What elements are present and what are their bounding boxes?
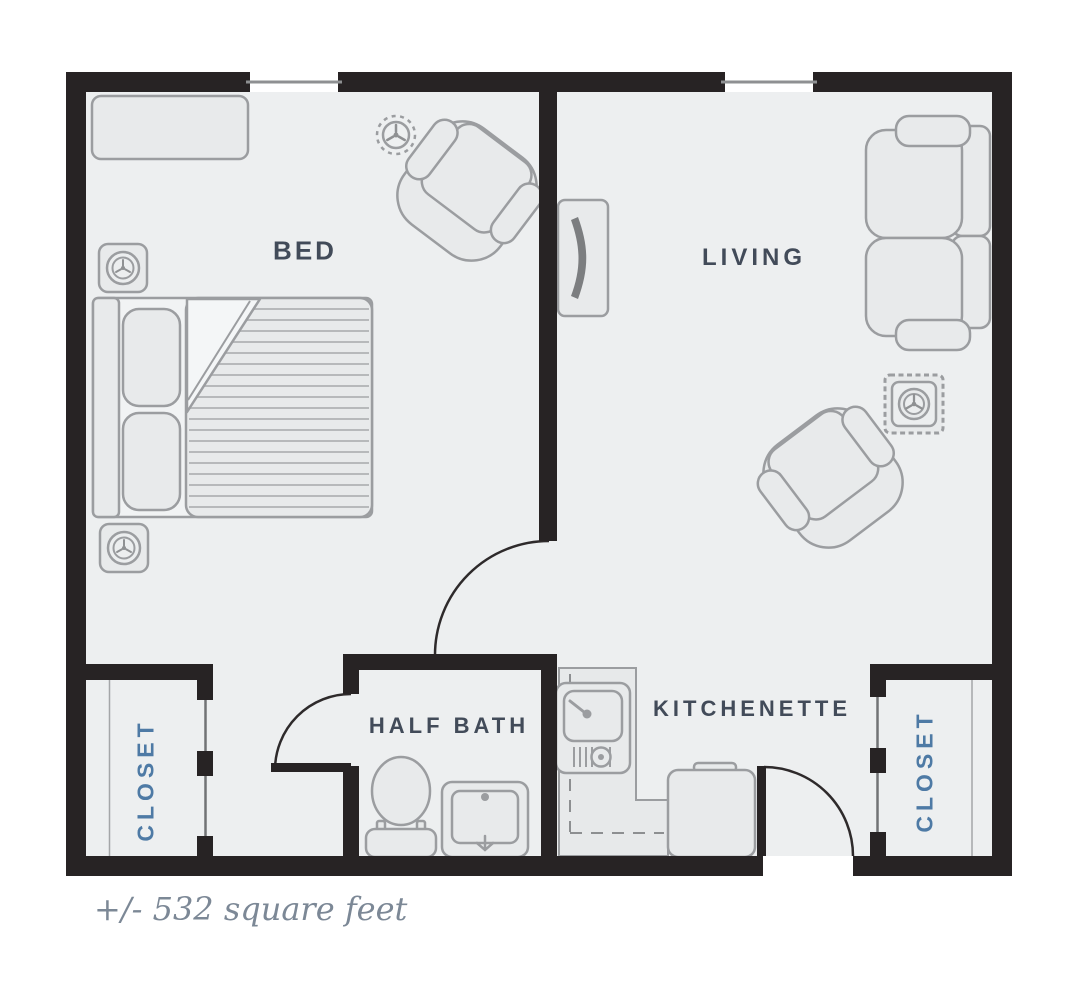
- wall-speaker-icon: [100, 524, 148, 572]
- kitchen-sink: [556, 683, 630, 773]
- room-label-closet-right: CLOSET: [912, 709, 939, 832]
- bathroom-sink: [442, 782, 528, 857]
- floor-plan: BED LIVING HALF BATH KITCHENETTE CLOSET …: [0, 0, 1080, 986]
- pillow: [123, 309, 180, 406]
- floor-plan-drawing: [0, 0, 1080, 986]
- toilet: [366, 757, 436, 857]
- wall-tv: [558, 200, 608, 316]
- sprinkler-icon: [377, 116, 415, 154]
- wall-speaker-icon: [99, 244, 147, 292]
- room-label-half-bath: HALF BATH: [369, 713, 529, 739]
- loveseat-sofa: [866, 116, 990, 350]
- bath-door-panel: [271, 763, 351, 772]
- area-note: +/- 532 square feet: [94, 890, 407, 928]
- room-label-living: LIVING: [702, 244, 806, 272]
- room-label-kitchenette: KITCHENETTE: [653, 696, 851, 722]
- pillow: [123, 413, 180, 510]
- entry-door-panel: [757, 766, 766, 856]
- dresser: [92, 96, 248, 159]
- room-label-bed: BED: [273, 236, 337, 267]
- room-label-closet-left: CLOSET: [133, 718, 160, 841]
- bed: [93, 298, 372, 517]
- side-table: [885, 375, 943, 433]
- mini-fridge: [668, 763, 755, 857]
